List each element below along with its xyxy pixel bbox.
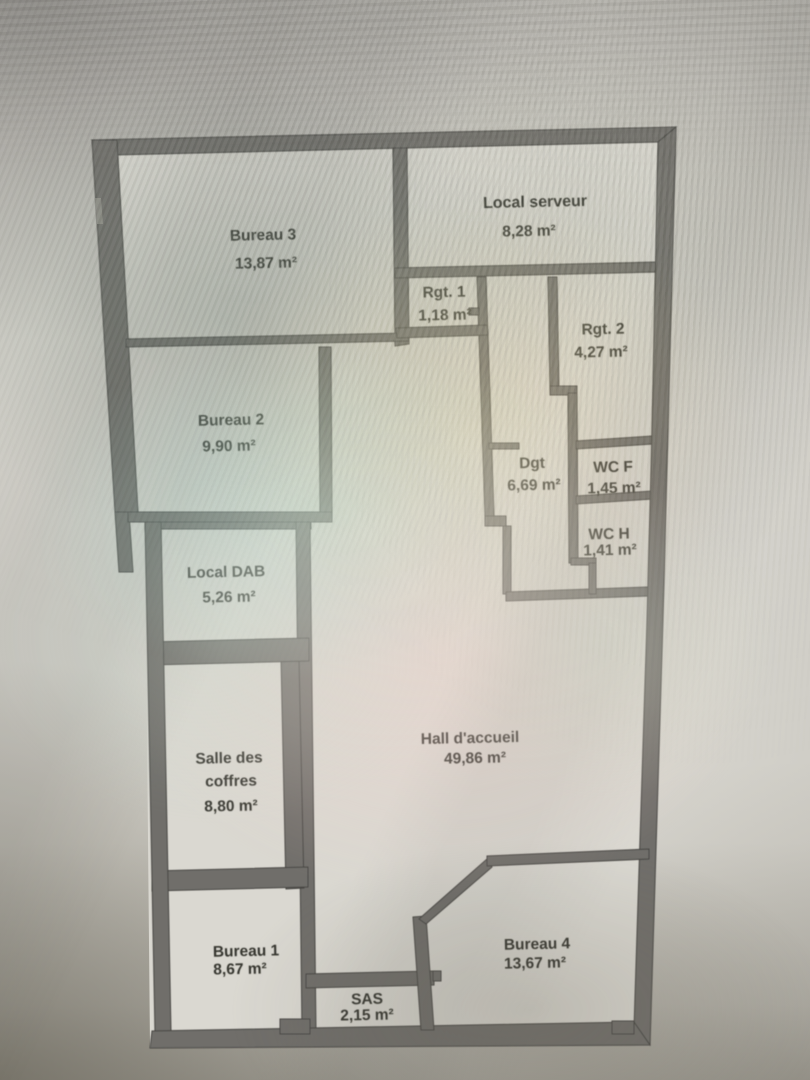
- svg-text:8,80 m²: 8,80 m²: [204, 797, 258, 815]
- svg-text:2,15 m²: 2,15 m²: [340, 1006, 394, 1024]
- svg-text:9,90 m²: 9,90 m²: [202, 437, 256, 455]
- svg-text:1,45 m²: 1,45 m²: [587, 479, 641, 497]
- svg-text:Salle des: Salle des: [195, 749, 263, 767]
- svg-text:WC F: WC F: [593, 459, 633, 477]
- svg-text:Hall d'accueil: Hall d'accueil: [421, 729, 520, 748]
- svg-text:4,27 m²: 4,27 m²: [574, 343, 628, 361]
- svg-text:13,87 m²: 13,87 m²: [235, 254, 297, 272]
- svg-text:Rgt. 1: Rgt. 1: [422, 284, 466, 302]
- svg-text:SAS: SAS: [351, 991, 383, 1009]
- svg-text:Bureau 2: Bureau 2: [198, 411, 265, 429]
- svg-text:Dgt: Dgt: [519, 455, 545, 473]
- svg-text:coffres: coffres: [205, 772, 257, 790]
- svg-text:Bureau 4: Bureau 4: [504, 935, 571, 953]
- svg-text:1,18 m²: 1,18 m²: [418, 306, 472, 324]
- svg-text:5,26 m²: 5,26 m²: [202, 588, 256, 606]
- svg-text:8,67 m²: 8,67 m²: [213, 960, 267, 978]
- svg-text:Local serveur: Local serveur: [483, 193, 587, 212]
- svg-text:49,86 m²: 49,86 m²: [444, 749, 506, 767]
- svg-text:6,69 m²: 6,69 m²: [507, 476, 561, 494]
- svg-text:Local DAB: Local DAB: [187, 563, 266, 582]
- svg-text:13,67 m²: 13,67 m²: [504, 954, 566, 972]
- svg-text:1,41 m²: 1,41 m²: [583, 541, 637, 559]
- svg-text:Rgt. 2: Rgt. 2: [581, 321, 624, 339]
- svg-text:Bureau 1: Bureau 1: [213, 942, 280, 960]
- svg-text:8,28 m²: 8,28 m²: [502, 222, 556, 240]
- svg-text:Bureau 3: Bureau 3: [230, 226, 297, 244]
